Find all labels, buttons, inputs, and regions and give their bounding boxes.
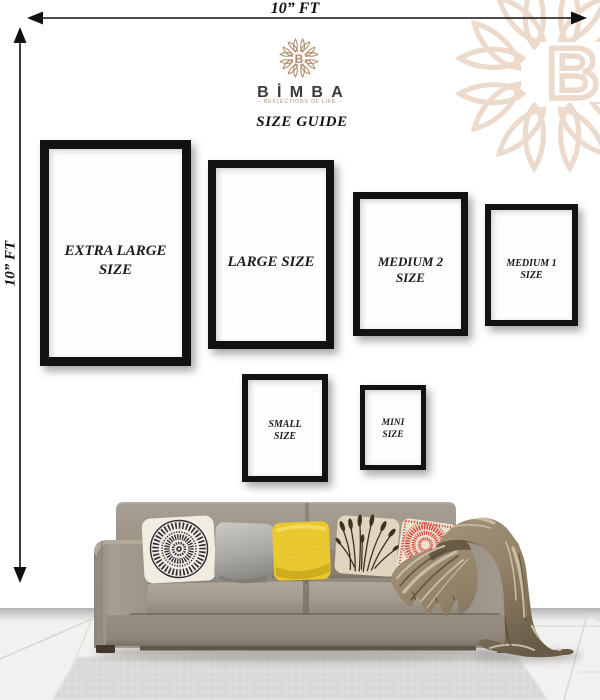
svg-text:B: B: [295, 52, 304, 66]
svg-text:B: B: [547, 34, 599, 114]
